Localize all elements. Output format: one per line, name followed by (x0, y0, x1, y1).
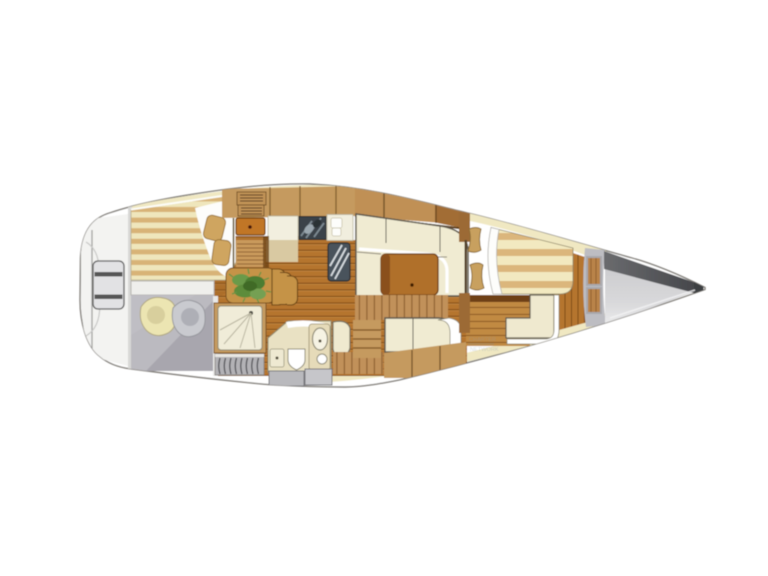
svg-text:NETWORK: NETWORK (470, 347, 499, 353)
svg-text:CHARTER: CHARTER (469, 337, 496, 343)
